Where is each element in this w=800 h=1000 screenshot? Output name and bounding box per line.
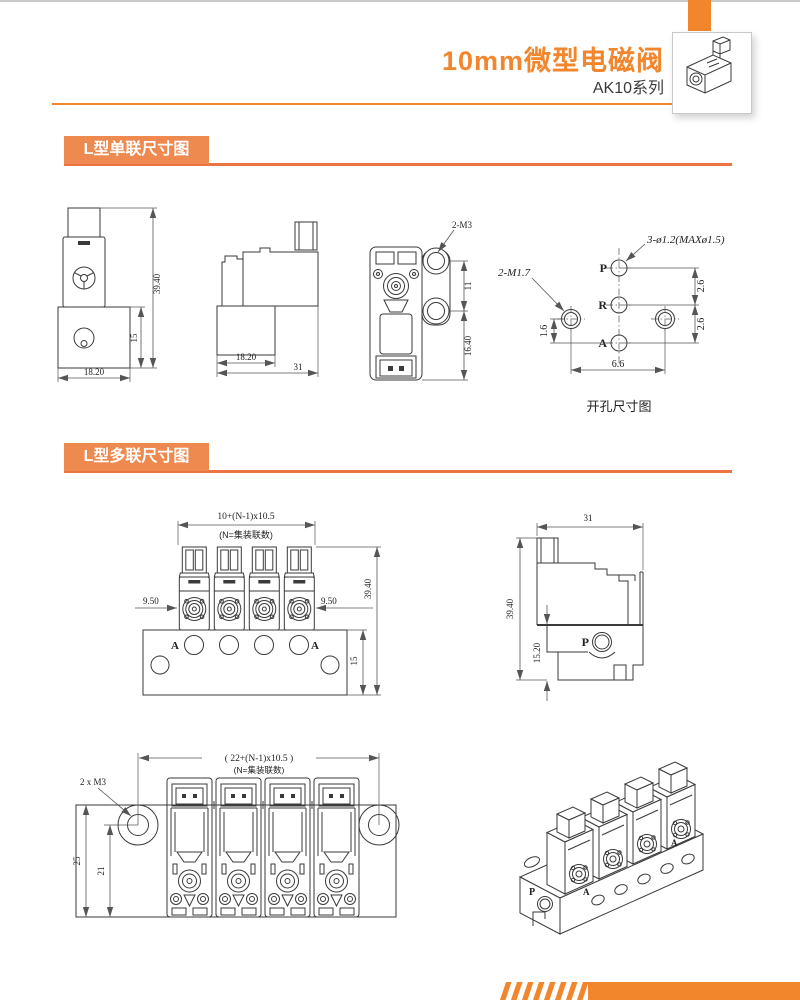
dim-total-width: 31 bbox=[294, 362, 303, 372]
dim-p-r: 2.6 bbox=[696, 280, 707, 293]
hole-pattern-caption: 开孔尺寸图 bbox=[586, 399, 651, 414]
port-p-label: P bbox=[600, 261, 607, 275]
hole-pattern-drawing: 3-ø1.2(MAXø1.5) 2-M1.7 P R A 6.6 1.6 2.6… bbox=[490, 222, 780, 417]
pitch-formula: 10+(N-1)x10.5 bbox=[217, 511, 275, 522]
dim-base-height: 15.20 bbox=[532, 642, 542, 663]
single-top-view-drawing: 2-M3 11 16.40 bbox=[358, 196, 483, 396]
screw-callout: 2 x M3 bbox=[80, 777, 107, 787]
section-multi-badge: L型多联尺寸图 bbox=[64, 443, 209, 471]
dim-lower-length: 16.40 bbox=[463, 335, 473, 356]
dim-height: 39.40 bbox=[505, 598, 515, 619]
pitch-note: (N=集装联数) bbox=[234, 765, 285, 775]
manifold-side-drawing: P 31 39.40 15.20 bbox=[485, 505, 670, 705]
dim-screw-pitch: 6.6 bbox=[612, 359, 625, 370]
dim-hole-pitch: 11 bbox=[463, 282, 473, 291]
single-top-outline bbox=[370, 247, 450, 380]
manifold-front-valves bbox=[179, 547, 314, 630]
dim-r-a: 2.6 bbox=[696, 318, 707, 331]
pitch-formula: ( 22+(N-1)x10.5 ) bbox=[225, 753, 293, 764]
single-side-outline bbox=[217, 222, 318, 355]
port-a-right-label: A bbox=[311, 640, 319, 652]
screw-callout: 2-M1.7 bbox=[498, 267, 531, 279]
manifold-top-valves bbox=[167, 778, 359, 917]
screw-callout: 2-M3 bbox=[452, 220, 472, 230]
manifold-side-dimensions: 31 39.40 15.20 bbox=[505, 513, 643, 701]
dim-height: 39.40 bbox=[152, 273, 162, 294]
dim-base-width: 18.20 bbox=[236, 352, 257, 362]
product-thumbnail bbox=[672, 32, 752, 114]
series-subtitle: AK10系列 bbox=[260, 80, 664, 98]
header: 10mm微型电磁阀 AK10系列 bbox=[260, 46, 664, 98]
dim-depth: 25 bbox=[72, 856, 82, 866]
dim-left: 9.50 bbox=[143, 596, 159, 606]
dim-screw-offset: 1.6 bbox=[539, 325, 550, 338]
port-p-label: P bbox=[529, 887, 535, 898]
single-front-outline bbox=[58, 208, 130, 368]
page-title: 10mm微型电磁阀 bbox=[260, 46, 664, 77]
hole-pattern-outline bbox=[557, 248, 679, 363]
hole-pattern-labels: 3-ø1.2(MAXø1.5) 2-M1.7 P R A bbox=[498, 234, 725, 350]
header-rule bbox=[52, 103, 674, 105]
manifold-top-drawing: ( 22+(N-1)x10.5 ) (N=集装联数) 2 x M3 25 21 bbox=[62, 735, 407, 930]
dim-hole-offset: 21 bbox=[96, 867, 106, 876]
single-side-dimensions: 18.20 31 bbox=[217, 306, 318, 377]
dim-base-height: 15 bbox=[129, 333, 139, 343]
dim-right: 9.50 bbox=[321, 596, 337, 606]
dim-width: 31 bbox=[584, 513, 593, 523]
manifold-front-base: A A bbox=[143, 630, 347, 695]
header-orange-tab bbox=[688, 0, 711, 31]
port-a-left-label: A bbox=[171, 640, 179, 652]
pitch-note: (N=集装联数) bbox=[219, 529, 273, 540]
product-thumb-drawing bbox=[673, 33, 751, 113]
hole-pattern-dimensions: 6.6 1.6 2.6 2.6 bbox=[539, 268, 707, 374]
single-side-view-drawing: 18.20 31 bbox=[210, 215, 350, 380]
single-front-view-drawing: 39.40 15 18.20 bbox=[38, 192, 168, 392]
manifold-isometric-drawing: P A A bbox=[485, 738, 735, 953]
dim-width: 18.20 bbox=[84, 367, 105, 377]
manifold-front-drawing: A A 10+(N-1)x10.5 (N=集装联数) 9.50 9.50 15 … bbox=[135, 505, 395, 700]
port-r-label: R bbox=[598, 298, 607, 312]
port-callout: 3-ø1.2(MAXø1.5) bbox=[646, 234, 725, 246]
dim-height: 39.40 bbox=[363, 578, 373, 599]
section-single-badge: L型单联尺寸图 bbox=[64, 136, 209, 164]
footer-stripes bbox=[490, 981, 800, 1000]
datasheet-page: 10mm微型电磁阀 AK10系列 L型单联尺寸图 bbox=[0, 0, 800, 1000]
single-front-dimensions: 39.40 15 18.20 bbox=[58, 208, 162, 382]
port-p-label: P bbox=[582, 635, 589, 649]
port-a-side-label: A bbox=[671, 838, 678, 848]
port-a-front-label: A bbox=[583, 887, 590, 897]
dim-base-height: 15 bbox=[349, 656, 359, 666]
manifold-side-outline: P bbox=[537, 538, 643, 680]
top-divider bbox=[0, 0, 800, 2]
